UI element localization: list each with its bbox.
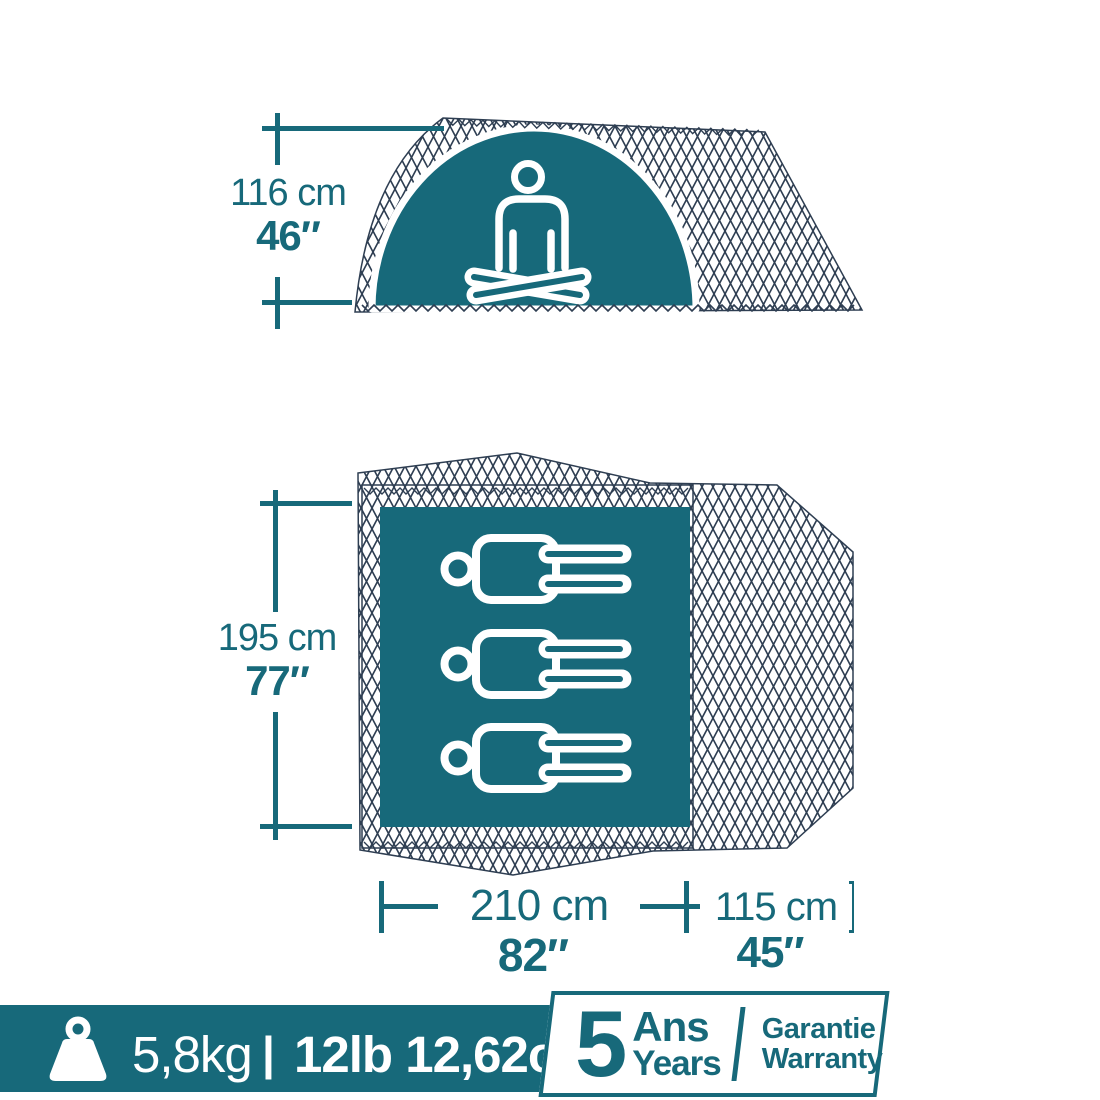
length-label-metric: 195 cm [197,617,357,660]
warranty-years-value: 5 [575,1007,624,1080]
length-dim-lower-segment [273,712,278,840]
width-label-imperial: 82″ [438,928,628,982]
warranty-years-label: Years [632,1047,720,1080]
warranty-badge-content: 5 Ans Years Garantie Warranty [545,991,883,1097]
warranty-garantie-label: Garantie [762,1014,883,1044]
sleeping-area [380,507,690,827]
tent-side-view [340,105,880,320]
width-dim-left-tick [379,881,384,933]
length-label-imperial: 77″ [197,657,357,705]
weight-imperial-label: 12lb 12,62oz [294,1025,583,1084]
width-dim-mid-tick [684,881,689,933]
width-label-metric: 210 cm [438,882,640,930]
height-dim-top-line [262,126,444,131]
vestibule-label-metric: 115 cm [700,884,852,930]
height-dim-top-tick [275,113,280,165]
tent-dimensions-infographic: 116 cm 46″ [0,0,1100,1100]
tent-floor-plan [350,445,890,885]
height-dim-bottom-tick [275,277,280,329]
vestibule-label-imperial: 45″ [700,928,840,978]
height-label-metric: 116 cm [208,172,368,215]
warranty-divider [731,1007,745,1081]
weight-metric-label: 5,8kg [132,1025,252,1084]
length-dim-bottom-line [260,824,352,829]
warranty-warranty-label: Warranty [762,1044,883,1074]
height-label-imperial: 46″ [208,212,368,260]
weight-icon [46,1016,110,1084]
weight-separator: | [262,1026,274,1080]
warranty-ans-label: Ans [632,1008,720,1047]
length-dim-upper-segment [273,490,278,612]
